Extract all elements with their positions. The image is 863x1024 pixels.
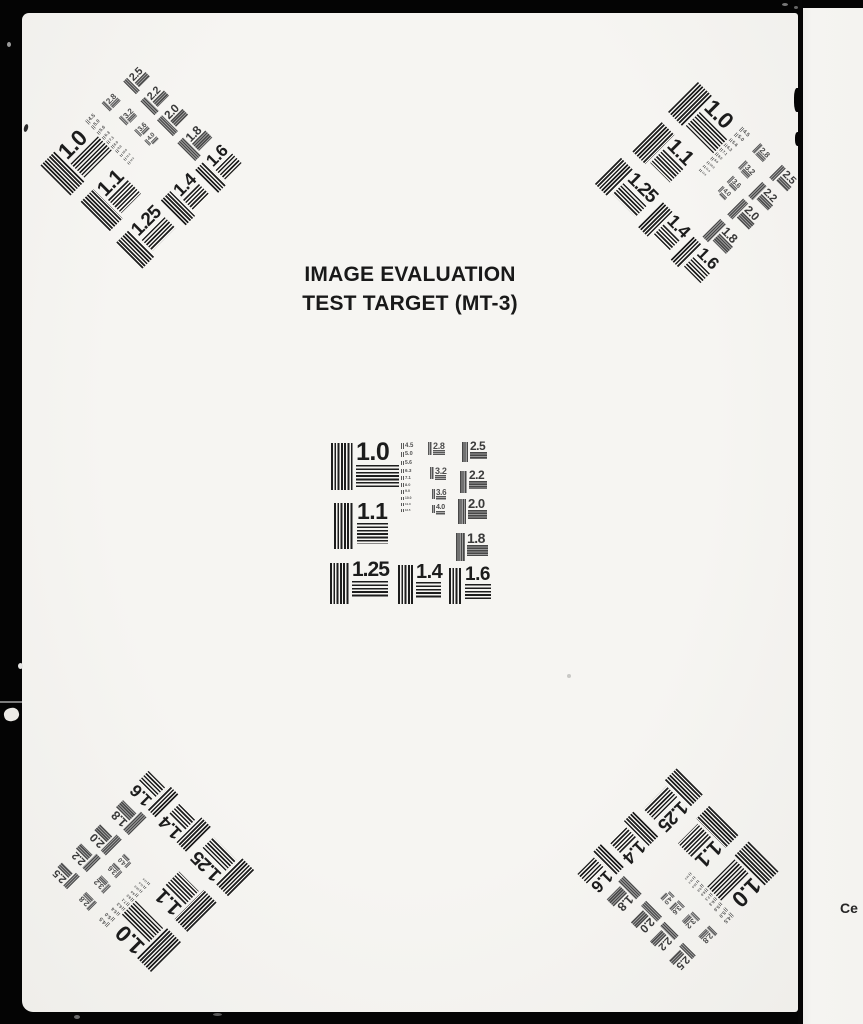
res-label: 11.0 [405,503,411,506]
tiny-bars [401,469,404,473]
res-block-4-0: 4.0 [144,132,159,147]
vertical-bars [458,499,466,524]
res-block-3-2: 3.2 [93,875,112,894]
tiny-bars [143,885,147,889]
tiny-res-row: 5.6 [401,461,423,466]
res-label: 10.0 [405,497,411,500]
scan-speck [567,674,571,678]
res-block-2-0: 2.0 [458,499,487,524]
tiny-bars [401,443,404,449]
tiny-bars [147,882,151,886]
res-label: 4.5 [405,443,413,449]
res-block-1-4: 1.4 [398,565,442,604]
horizontal-bars [436,511,445,515]
res-label: 9.0 [405,490,410,494]
res-label: 1.8 [467,532,488,545]
res-label: 9.0 [696,886,701,891]
tiny-bars [139,889,143,893]
tiny-bars [401,483,404,487]
horizontal-bars [435,475,446,480]
tiny-res-row: 4.5 [401,443,423,449]
horizontal-bars [469,481,487,489]
tiny-bars [401,461,404,466]
horizontal-bars [467,545,488,556]
res-label: 7.1 [704,895,710,901]
scan-speck [18,663,23,669]
scan-speck [7,42,11,47]
res-block-1-25: 1.25 [330,563,389,604]
horizontal-bars [436,496,446,500]
res-block-4-0: 4.0 [432,505,445,515]
res-block-3-2: 3.2 [119,107,138,126]
res-label: 1.0 [356,441,399,464]
tiny-res-row: 11.0 [401,503,423,506]
scan-blob [3,706,21,722]
res-block-1-1: 1.1 [334,503,388,549]
res-label: 1.25 [352,561,389,580]
tiny-res-row: 6.3 [401,469,423,474]
res-label: 5.6 [731,140,739,148]
title-line-1: IMAGE EVALUATION [300,261,520,290]
vertical-bars [398,565,413,604]
res-block-2-8: 2.8 [428,442,445,455]
scan-scratch [0,701,22,703]
vertical-bars [428,442,432,455]
res-label: 2.2 [469,470,487,481]
vertical-bars [334,503,354,549]
res-label: 5.0 [405,452,413,458]
res-block-3-2: 3.2 [430,467,447,480]
res-block-4-0: 4.0 [118,853,133,868]
scan-speck [213,1013,222,1016]
horizontal-bars [433,450,445,455]
horizontal-bars [352,581,388,598]
scanned-microfilm-frame: Ce IMAGE EVALUATION TEST TARGET (MT-3) 1… [0,0,863,1024]
scan-speck [74,1015,80,1019]
res-label: 12.5 [701,171,706,176]
res-label: 7.1 [405,476,411,480]
res-label: 3.2 [435,467,447,475]
res-label: 2.5 [470,441,487,452]
horizontal-bars [470,452,487,459]
res-block-1-8: 1.8 [456,533,488,561]
res-block-2-5: 2.5 [462,442,487,462]
tiny-bars [401,490,404,493]
tiny-res-row: 9.0 [401,490,423,494]
res-block-3-6: 3.6 [432,489,446,500]
res-label: 8.0 [700,890,706,896]
tiny-bars [135,893,139,897]
tiny-res-row: 12.5 [401,509,423,512]
tiny-res-row: 5.0 [401,452,423,458]
vertical-bars [460,471,467,493]
edge-text: Ce [840,900,858,916]
vertical-bars [430,467,434,479]
vertical-bars [432,489,435,499]
horizontal-bars [416,582,441,598]
tiny-bars [401,476,404,480]
tiny-res-row: 8.0 [401,483,423,487]
res-label: 2.0 [468,498,487,510]
res-block-4-0: 4.0 [660,890,675,905]
vertical-bars [331,443,353,490]
test-pattern-center: 1.0 1.1 1.25 1.4 1.6 2.5 [325,441,495,606]
res-block-3-2: 3.2 [737,160,756,179]
scan-speck [782,3,788,6]
res-label: 9.0 [713,159,718,164]
res-label: 2.8 [433,442,445,450]
res-label: 1.4 [416,563,442,581]
res-block-3-6: 3.6 [669,899,685,915]
horizontal-bars [468,510,487,519]
tiny-bars [401,497,404,500]
res-label: 12.5 [130,157,135,162]
horizontal-bars [357,523,388,544]
film-strip-margin: Ce [803,8,863,1024]
res-label: 1.1 [357,501,388,522]
res-block-4-0: 4.0 [716,186,731,201]
horizontal-bars [465,584,491,599]
divider-blemish [795,132,801,146]
tiny-res-row: 10.0 [401,497,423,500]
res-label: 6.3 [405,469,411,474]
horizontal-bars [356,465,399,487]
title-line-2: TEST TARGET (MT-3) [300,290,520,319]
res-block-1-6: 1.6 [449,568,491,604]
vertical-bars [432,505,435,513]
scan-speck [794,6,798,9]
res-label: 5.6 [405,461,412,466]
fine-resolution-column: 4.5 5.0 5.6 6.3 7.1 8.0 9.0 10.0 11.0 12… [401,443,423,515]
res-label: 12.5 [405,509,410,512]
tiny-res-row: 7.1 [401,476,423,480]
film-frame-divider-line [798,0,802,1024]
res-block-1-0: 1.0 [331,443,399,490]
vertical-bars [330,563,349,604]
mt3-resolution-pattern: 1.0 1.1 1.25 1.4 1.6 2.5 [325,441,495,606]
res-block-3-2: 3.2 [681,911,700,930]
tiny-bars [401,503,404,506]
res-label: 1.6 [465,566,491,583]
tiny-bars [401,452,404,457]
divider-blemish [794,88,801,112]
tiny-bars [401,509,404,512]
res-label: 3.6 [436,489,446,496]
res-label: 8.0 [405,483,410,487]
target-title: IMAGE EVALUATION TEST TARGET (MT-3) [300,261,520,318]
vertical-bars [456,533,465,561]
vertical-bars [449,568,462,604]
res-block-2-2: 2.2 [460,471,487,493]
vertical-bars [462,442,468,462]
